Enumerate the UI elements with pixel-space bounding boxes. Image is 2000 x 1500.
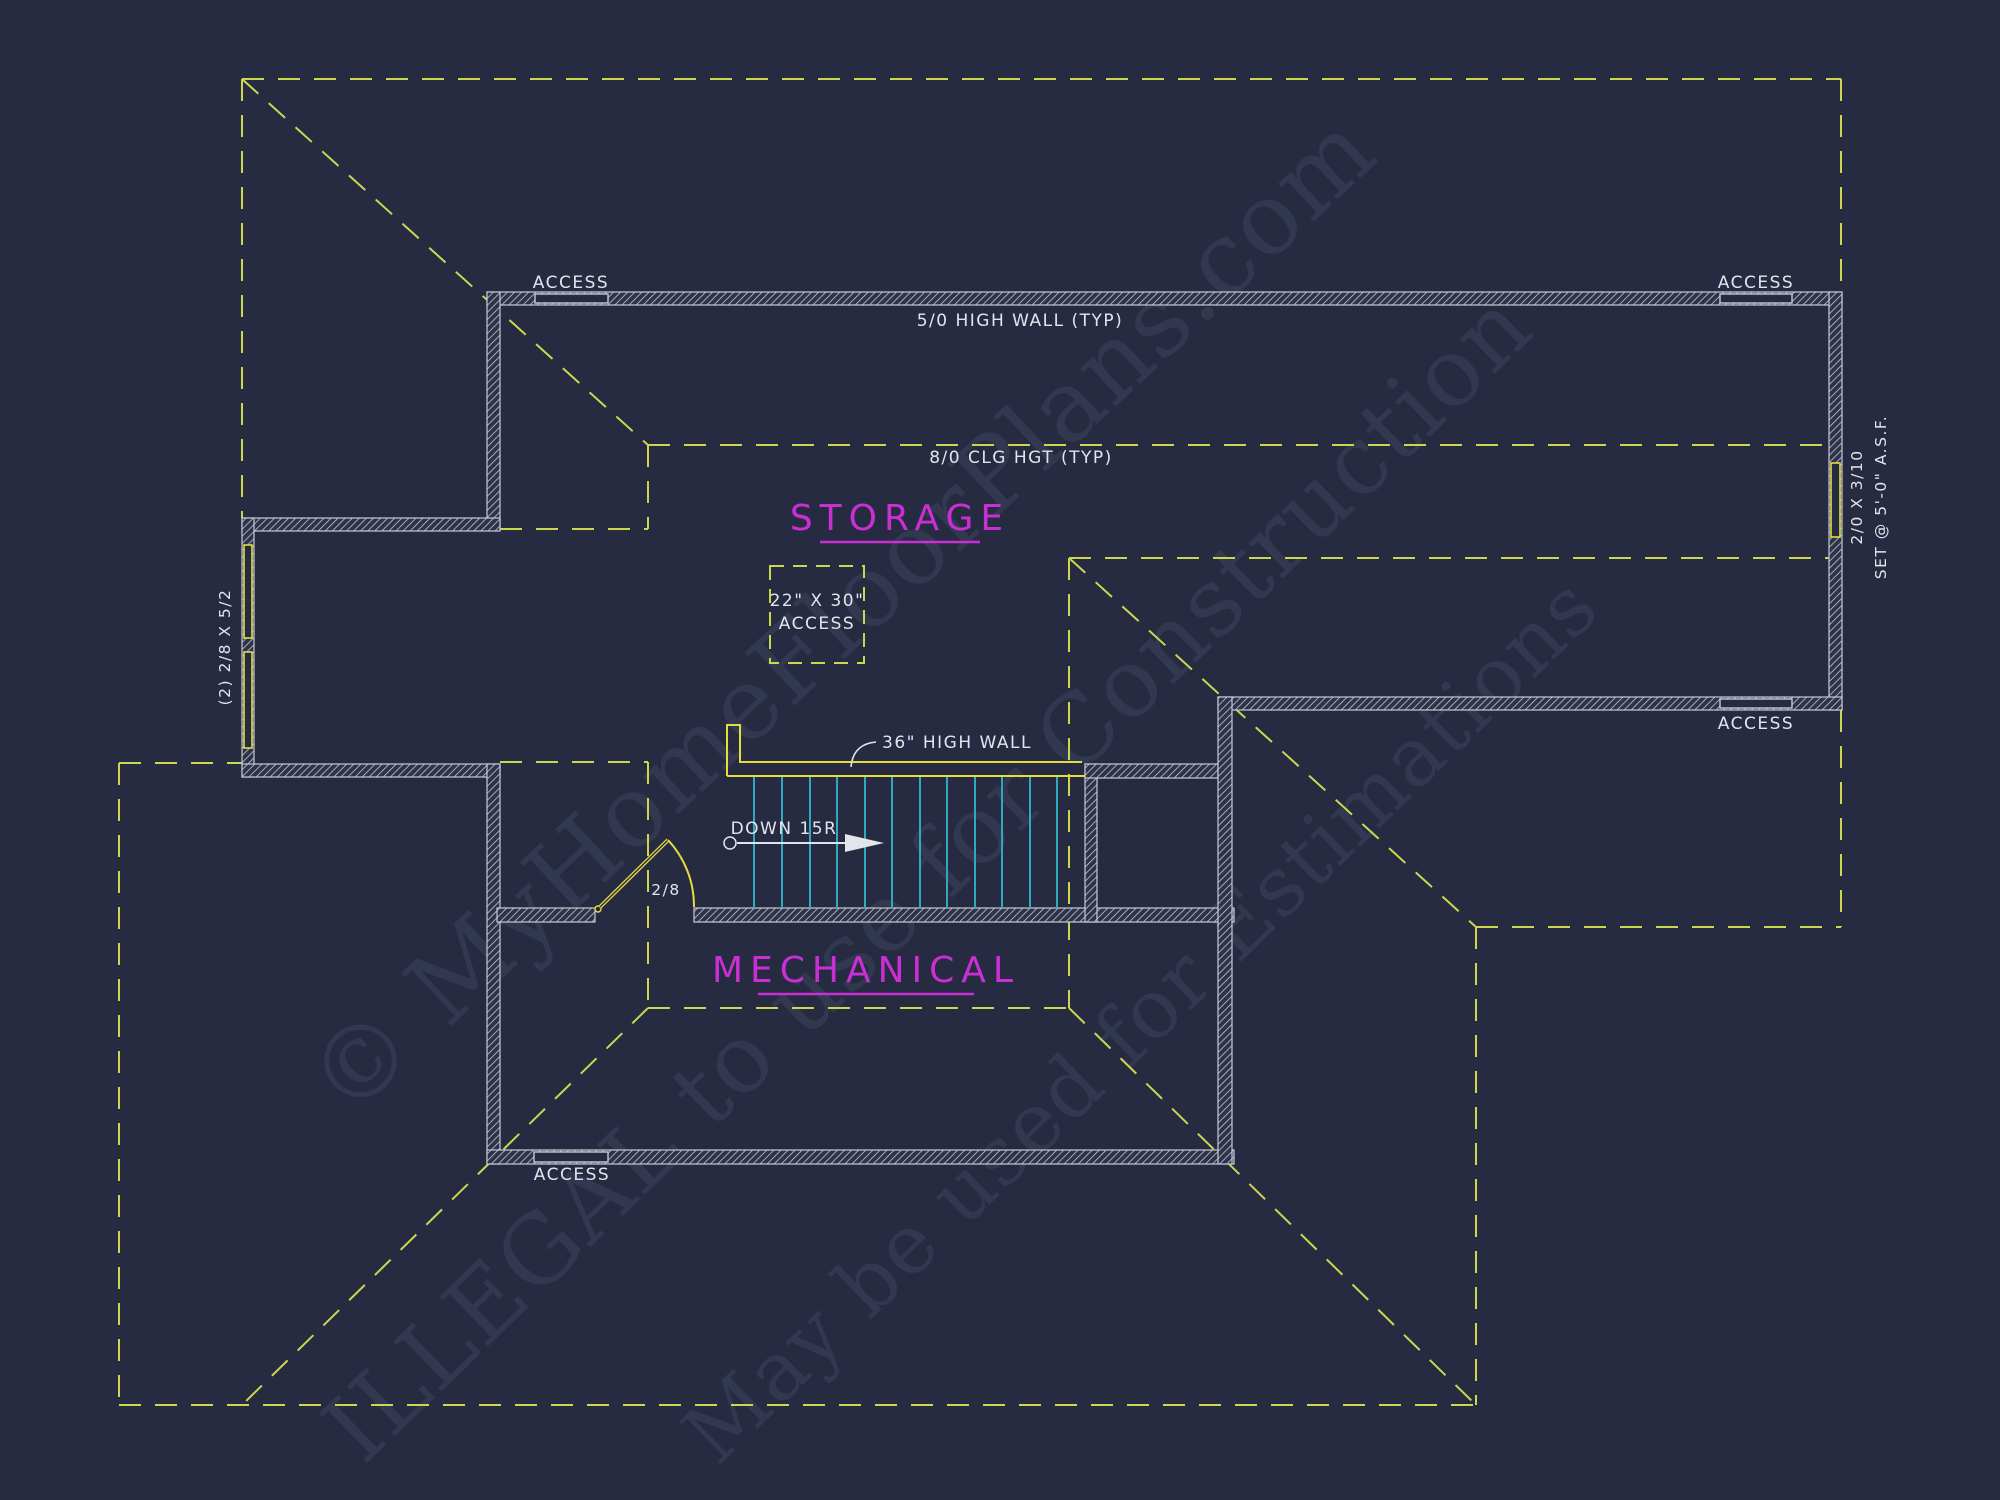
wall-stair-south-right xyxy=(694,908,1234,922)
access-opening-bottom xyxy=(534,1152,608,1162)
window-left-lower xyxy=(244,652,252,748)
door-size-label: 2/8 xyxy=(651,881,680,899)
ceiling-height-label: 8/0 CLG HGT (TYP) xyxy=(929,448,1113,468)
hip-diagonal-nw xyxy=(242,79,648,445)
wall-west-wing-top xyxy=(242,518,500,531)
wall-storage-west xyxy=(487,292,500,530)
right-window-note-label: SET @ 5'-0" A.S.F. xyxy=(1872,415,1890,579)
floor-plan-canvas: © MyHomeFloorPlans.com ILLEGAL to use fo… xyxy=(0,0,2000,1500)
storage-room-label: STORAGE xyxy=(790,498,1010,539)
wall-stair-south-left xyxy=(497,908,595,922)
access-opening-east-wing xyxy=(1720,699,1792,708)
attic-access-word-label: ACCESS xyxy=(779,614,855,634)
wall-mechanical-east xyxy=(1218,697,1232,1164)
floor-plan-drawing: © MyHomeFloorPlans.com ILLEGAL to use fo… xyxy=(0,0,2000,1500)
wall-west-wing-bottom xyxy=(242,764,500,777)
window-left-upper xyxy=(244,545,252,638)
left-windows-label: (2) 2/8 X 5/2 xyxy=(216,589,234,706)
access-opening-top-left xyxy=(535,294,608,303)
right-window-size-label: 2/0 X 3/10 xyxy=(1848,449,1866,544)
wall-top xyxy=(487,292,1842,305)
wall-stair-east xyxy=(1085,764,1097,922)
access-label-top-left: ACCESS xyxy=(533,273,609,293)
high-wall-typ-label: 5/0 HIGH WALL (TYP) xyxy=(917,311,1124,331)
access-label-east-wing: ACCESS xyxy=(1718,714,1794,734)
access-label-top-right: ACCESS xyxy=(1718,273,1794,293)
high-wall-36-label: 36" HIGH WALL xyxy=(882,733,1032,753)
hip-diagonal-se xyxy=(1069,1008,1476,1405)
window-right xyxy=(1831,463,1840,537)
access-opening-top-right xyxy=(1720,294,1792,303)
stairs-down-label: DOWN 15R xyxy=(731,819,838,839)
wall-mechanical-west xyxy=(487,764,500,1164)
mechanical-room-label: MECHANICAL xyxy=(712,950,1020,991)
wall-chase-top xyxy=(1085,764,1218,778)
high-wall-36-leader xyxy=(851,742,876,767)
access-label-bottom: ACCESS xyxy=(534,1165,610,1185)
attic-access-size-label: 22" X 30" xyxy=(770,591,865,611)
